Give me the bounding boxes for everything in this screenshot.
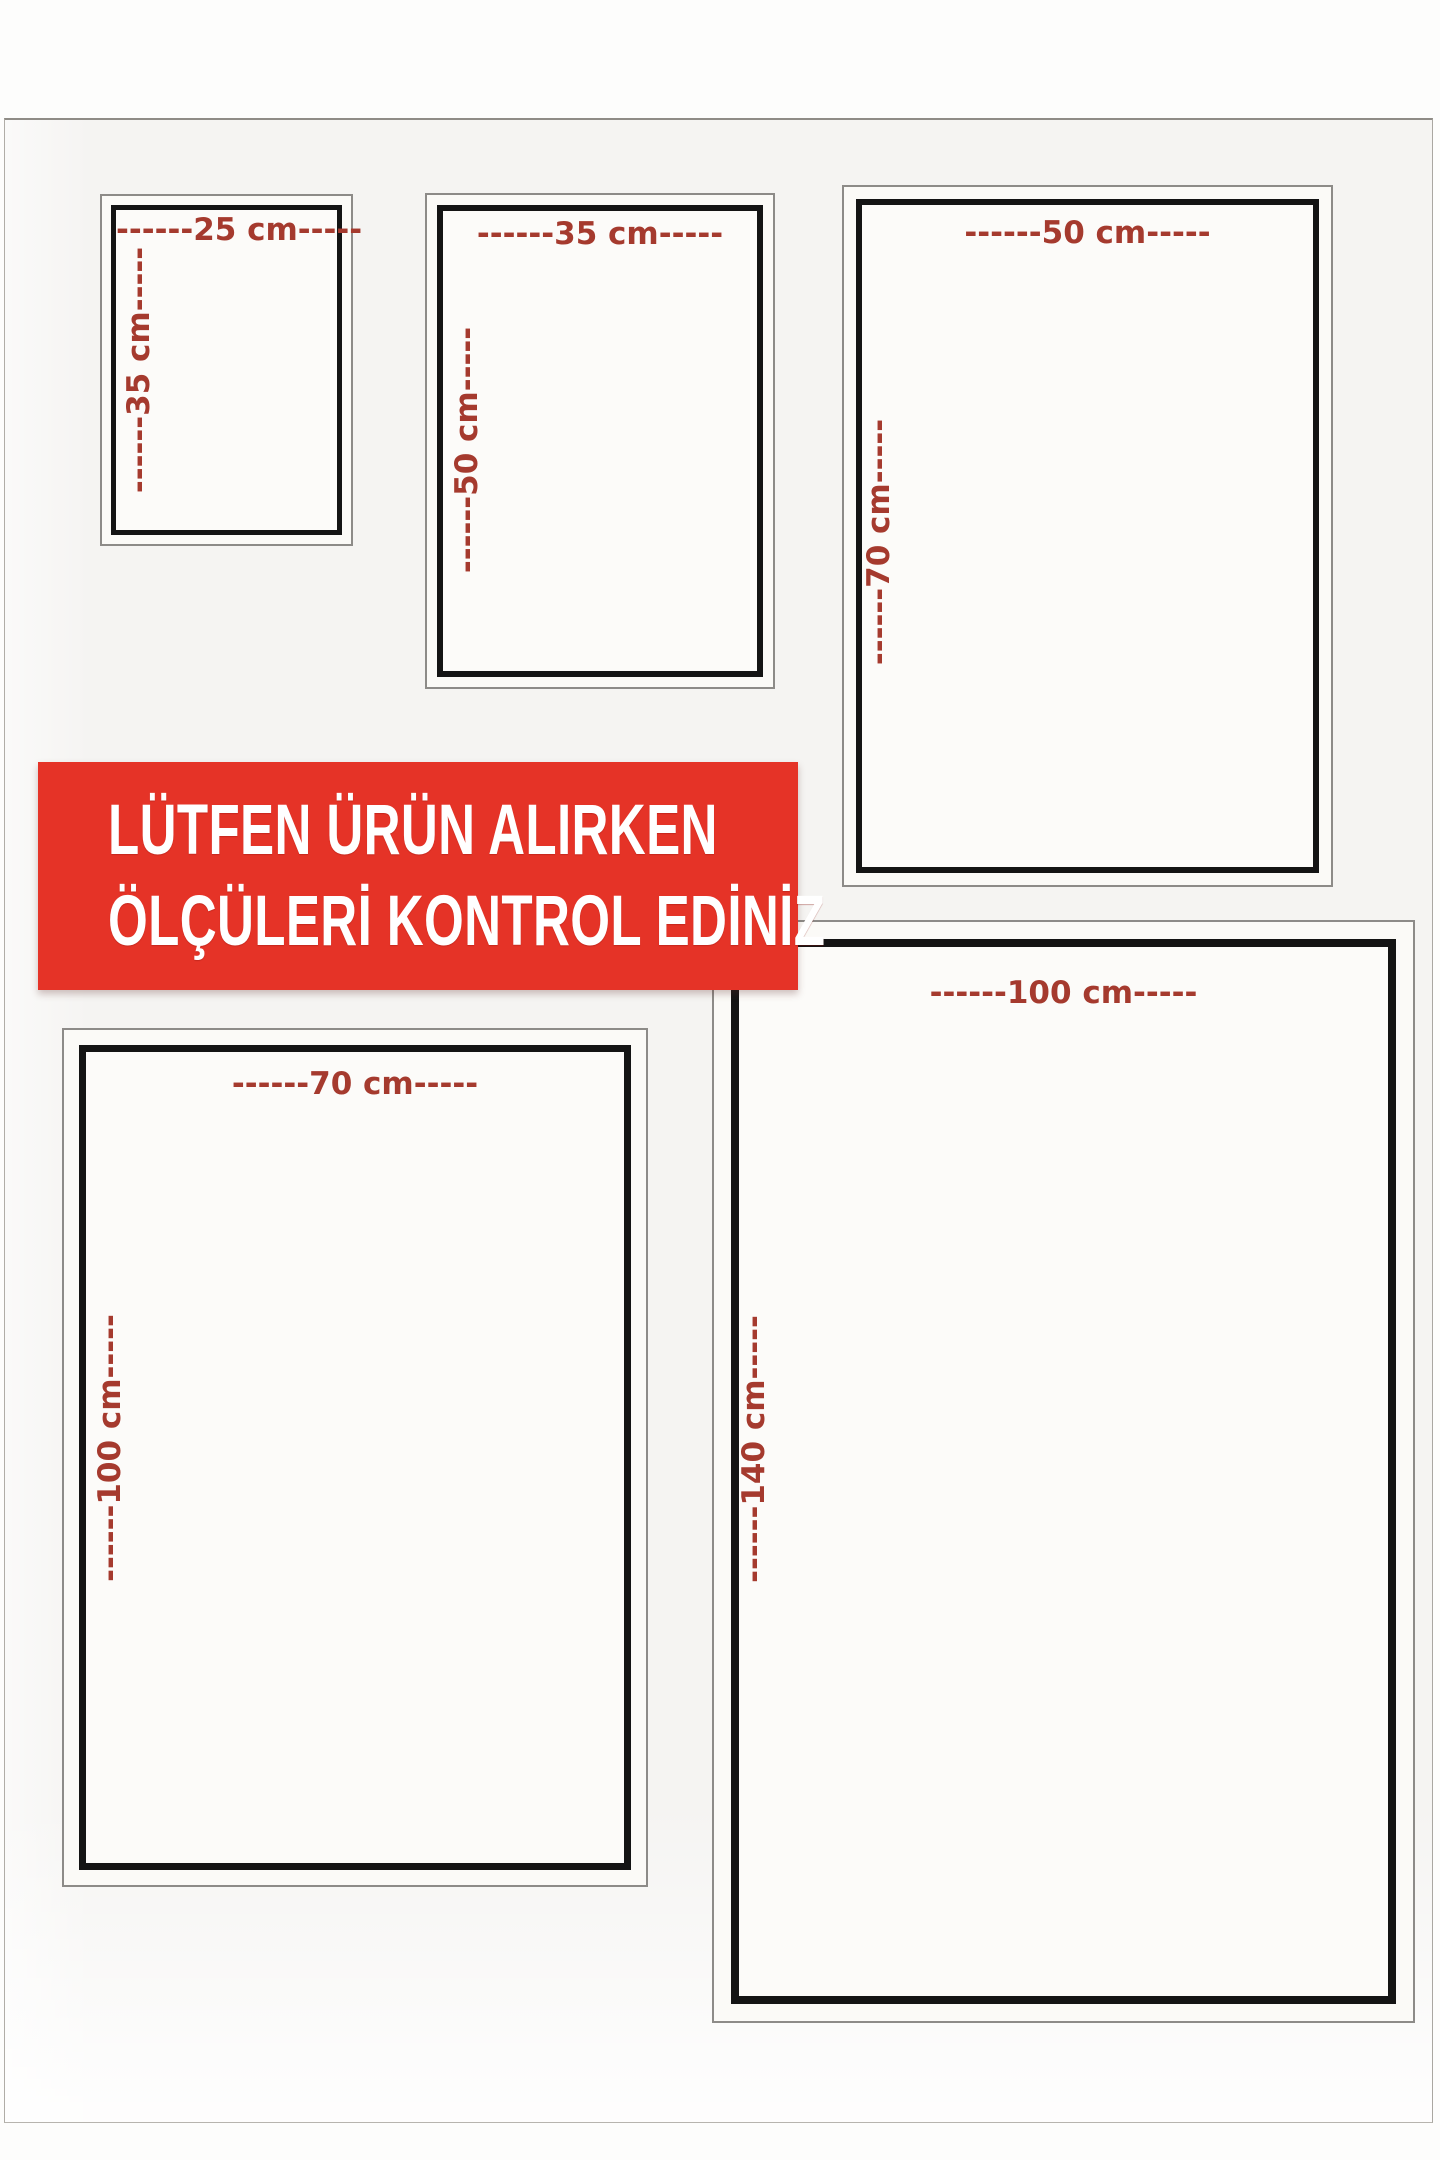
size-box-25x35: ------25 cm----- ------35 cm----- xyxy=(100,194,353,546)
size-box-100x140: ------100 cm----- ------140 cm----- xyxy=(712,920,1415,2023)
height-label-35cm: ------35 cm----- xyxy=(121,247,157,493)
width-label-100cm: ------100 cm----- xyxy=(739,975,1388,1011)
size-box-100x140-inner: ------100 cm----- xyxy=(731,939,1396,2004)
size-box-50x70-inner: ------50 cm----- xyxy=(856,199,1319,873)
height-label-50cm: ------50 cm----- xyxy=(449,327,485,573)
width-label-50cm: ------50 cm----- xyxy=(862,215,1313,251)
height-label-70cm: ------70 cm----- xyxy=(861,419,897,665)
size-box-50x70: ------50 cm----- ------70 cm----- xyxy=(842,185,1333,887)
notice-banner: LÜTFEN ÜRÜN ALIRKEN ÖLÇÜLERİ KONTROL EDİ… xyxy=(38,762,798,990)
notice-banner-line-1: LÜTFEN ÜRÜN ALIRKEN xyxy=(108,793,605,868)
height-label-140cm: ------140 cm----- xyxy=(736,1315,772,1583)
size-box-70x100-inner: ------70 cm----- xyxy=(79,1045,631,1870)
size-box-35x50-inner: ------35 cm----- xyxy=(437,205,763,677)
width-label-35cm: ------35 cm----- xyxy=(443,216,757,252)
notice-banner-line-2: ÖLÇÜLERİ KONTROL EDİNİZ xyxy=(108,884,605,959)
height-label-100cm: ------100 cm----- xyxy=(92,1314,128,1582)
size-box-70x100: ------70 cm----- ------100 cm----- xyxy=(62,1028,648,1887)
width-label-70cm: ------70 cm----- xyxy=(86,1066,624,1102)
size-box-35x50: ------35 cm----- ------50 cm----- xyxy=(425,193,775,689)
size-guide-canvas: ------25 cm----- ------35 cm----- ------… xyxy=(0,0,1440,2160)
width-label-25cm: ------25 cm----- xyxy=(116,212,337,248)
